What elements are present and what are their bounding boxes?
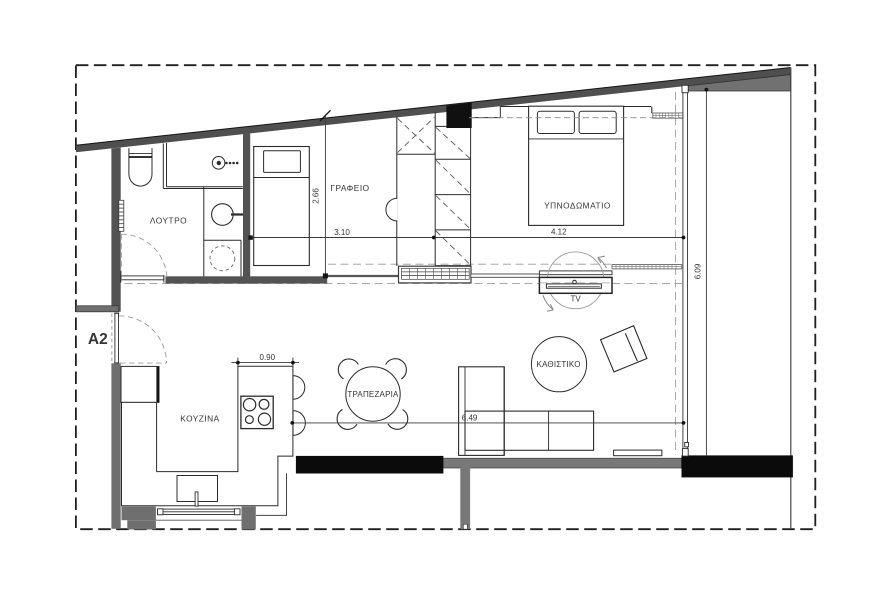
svg-text:3.10: 3.10 bbox=[334, 228, 350, 237]
svg-text:ΚΑΘΙΣΤΙΚΟ: ΚΑΘΙΣΤΙΚΟ bbox=[537, 360, 581, 369]
svg-text:6.49: 6.49 bbox=[462, 413, 478, 422]
svg-text:ΚΟΥΖΙΝΑ: ΚΟΥΖΙΝΑ bbox=[180, 414, 219, 424]
svg-text:0.90: 0.90 bbox=[260, 353, 276, 362]
svg-text:ΓΡΑΦΕΙΟ: ΓΡΑΦΕΙΟ bbox=[330, 183, 369, 193]
svg-text:6.09: 6.09 bbox=[694, 263, 703, 279]
svg-text:TV: TV bbox=[570, 295, 581, 304]
svg-text:4.12: 4.12 bbox=[551, 227, 567, 236]
svg-text:ΛΟΥΤΡΟ: ΛΟΥΤΡΟ bbox=[150, 216, 187, 226]
svg-text:2.66: 2.66 bbox=[312, 188, 321, 204]
svg-text:ΥΠΝΟΔΩΜΑΤΙΟ: ΥΠΝΟΔΩΜΑΤΙΟ bbox=[544, 201, 611, 211]
svg-text:ΤΡΑΠΕΖΑΡΙΑ: ΤΡΑΠΕΖΑΡΙΑ bbox=[347, 390, 399, 399]
svg-text:A2: A2 bbox=[88, 331, 108, 348]
